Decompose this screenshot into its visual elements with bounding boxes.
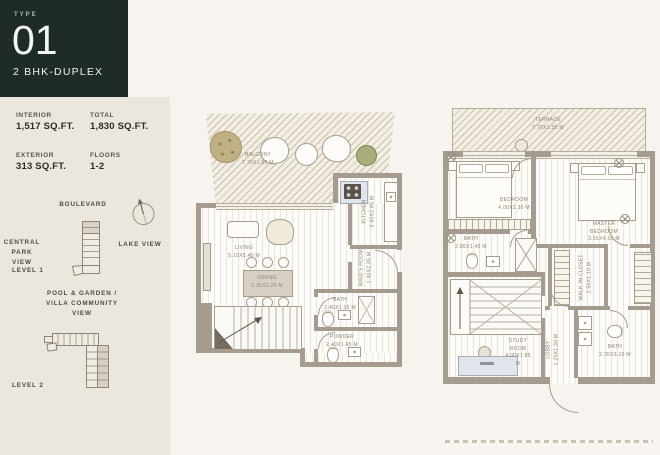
wall [630,244,655,248]
ceiling-symbol-icon [620,214,630,224]
room-label-terrace: TERRACE 7.70x1.35 M [508,117,588,132]
room-name: DINING [245,275,289,283]
dining-chair [262,257,273,268]
exterior-value: 313 SQ.FT. [16,161,66,172]
room-label-balcony: BALCONY 7.70x1.60 M [228,152,288,167]
interior-value: 1,517 SQ.FT. [16,121,74,132]
balcony-table [295,143,318,166]
building-footprint-level1-diagram [70,221,104,277]
room-label-lobby: LOBBY 1.20x1.30 M [546,330,561,370]
wall [397,272,402,367]
sink-icon [338,310,351,320]
ceiling-symbol-icon [446,152,456,162]
ceiling-symbol-icon [614,158,624,168]
wall [525,151,551,157]
room-name: BEDROOM [492,197,536,205]
wall [314,349,318,367]
pillow [581,166,606,175]
pillow [485,164,509,173]
room-name: STUDY ROOM [503,338,533,353]
room-label-bath2: BATH 2.35x3.10 M [592,344,638,359]
coffee-table [227,221,259,238]
room-dim: 2.50x1.10 M [586,255,594,301]
wall [528,230,536,234]
type-card: TYPE 01 2 BHK-DUPLEX [0,0,128,97]
wall [333,173,402,178]
room-name: LOBBY [546,330,554,370]
nightstand [636,163,645,173]
room-name: TERRACE [508,117,588,125]
wall [604,248,608,306]
room-dim: 2.85x1.45 M [448,244,494,252]
interior-label: INTERIOR [16,112,52,119]
wall [443,377,550,384]
room-dim: 5.35x2.20 M [245,283,289,291]
floors-value: 1-2 [90,161,104,172]
wall [443,272,545,277]
sink-icon [348,347,361,357]
level1-label: LEVEL 1 [12,266,44,276]
pool-garden-line1: POOL & GARDEN / [47,290,117,297]
room-dim: 7.70x1.60 M [228,160,288,168]
wall [443,151,448,384]
stove-icon [344,184,361,199]
wall [196,303,212,353]
room-name: WALK-IN CLOSET [579,255,587,301]
central-park-view-label: CENTRAL PARK VIEW [2,238,42,268]
wall [545,306,550,310]
room-name: LIVING [222,245,266,253]
sofa [266,219,294,245]
floors-label: FLOORS [90,152,121,159]
room-dim: 4.00x1.85 M [503,353,533,368]
plant-icon [356,145,377,166]
dining-chair [278,257,289,268]
desk-monitor [480,362,494,365]
room-dim: 1.20x1.30 M [553,330,561,370]
shower-icon [358,296,375,324]
type-number: 01 [12,20,58,61]
wall [348,203,352,245]
type-name: 2 BHK-DUPLEX [13,66,103,78]
ceiling-symbol-icon [446,233,456,243]
room-label-kitchen: KITCHEN 3.60x2.85 M [362,186,377,238]
staircase-level2 [450,279,542,335]
wall [318,327,402,331]
boulevard-label: BOULEVARD [43,200,123,210]
room-dim: 3.60x2.85 M [369,186,377,238]
building-footprint-level2-diagram [44,329,112,391]
wall [628,306,654,310]
exterior-label: EXTERIOR [16,152,54,159]
pool-garden-line2: VILLA COMMUNITY VIEW [46,300,118,317]
room-label-walk-in-closet: WALK-IN CLOSET 2.50x1.10 M [579,255,594,301]
staircase-level1 [214,306,302,350]
toilet-icon [466,254,478,269]
room-dim: 7.70x1.35 M [508,125,588,133]
sink-icon [486,256,500,267]
wall [314,289,318,297]
level2-label: LEVEL 2 [12,381,44,391]
wall [333,173,338,203]
room-dim: 4.00x3.30 M [492,205,536,213]
room-label-maids-room: MAID'S ROOM 1.40x2.05 M [359,245,374,291]
wall [548,248,552,306]
room-name: BALCONY [228,152,288,160]
pillow [459,164,483,173]
room-dim: 1.40x2.05 M [366,245,374,291]
room-label-dining: DINING 5.35x2.20 M [245,275,289,290]
wardrobe [447,219,531,230]
plot-boundary-dashed-line [445,440,653,443]
entry-door-arc [549,384,578,413]
room-label-study-room: STUDY ROOM 4.00x1.85 M [503,338,533,368]
room-label-bedroom: BEDROOM 4.00x3.30 M [492,197,536,212]
room-name: BATH [592,344,638,352]
wall [578,377,655,384]
dining-chair [246,257,257,268]
compass-icon [130,196,157,228]
toilet-icon [327,348,339,363]
room-name: MAID'S ROOM [359,245,367,291]
lake-view-label: LAKE VIEW [118,240,162,250]
window-band [216,203,333,210]
sink-icon [578,316,592,330]
total-label: TOTAL [90,112,114,119]
kitchen-sink [386,192,396,202]
room-label-living: LIVING 5.10x5.40 M [222,245,266,260]
wall [348,262,352,289]
room-name: KITCHEN [362,186,370,238]
sink-icon [578,332,592,346]
pool-garden-view-label: POOL & GARDEN / VILLA COMMUNITY VIEW [36,289,128,319]
tv-console [203,243,211,291]
room-dim: 5.10x5.40 M [222,253,266,261]
total-value: 1,830 SQ.FT. [90,121,148,132]
kitchen-counter [384,182,398,242]
room-dim: 2.35x3.10 M [592,352,638,360]
wardrobe [634,252,652,304]
floor-plan-page: TYPE 01 2 BHK-DUPLEX INTERIOR 1,517 SQ.F… [0,0,660,455]
